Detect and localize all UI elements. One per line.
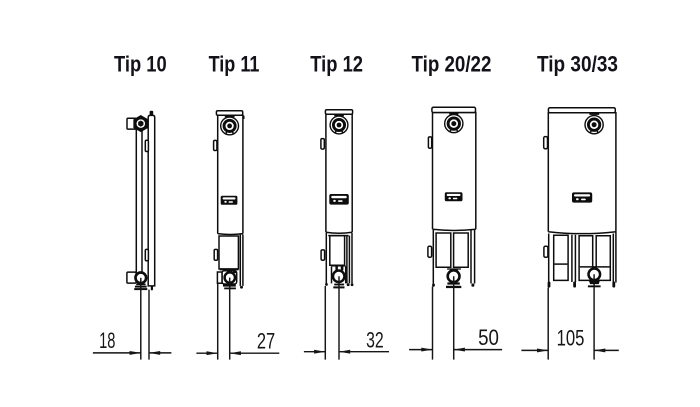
svg-text:Tip 20/22: Tip 20/22 xyxy=(412,52,492,77)
svg-text:50: 50 xyxy=(478,325,499,350)
svg-text:18: 18 xyxy=(99,328,115,353)
svg-text:Tip 30/33: Tip 30/33 xyxy=(537,52,618,77)
svg-text:Tip 12: Tip 12 xyxy=(310,52,363,77)
svg-text:105: 105 xyxy=(557,326,585,351)
svg-text:27: 27 xyxy=(257,328,275,353)
svg-text:32: 32 xyxy=(366,328,384,353)
svg-text:Tip 10: Tip 10 xyxy=(114,52,167,77)
svg-text:Tip 11: Tip 11 xyxy=(209,52,260,77)
